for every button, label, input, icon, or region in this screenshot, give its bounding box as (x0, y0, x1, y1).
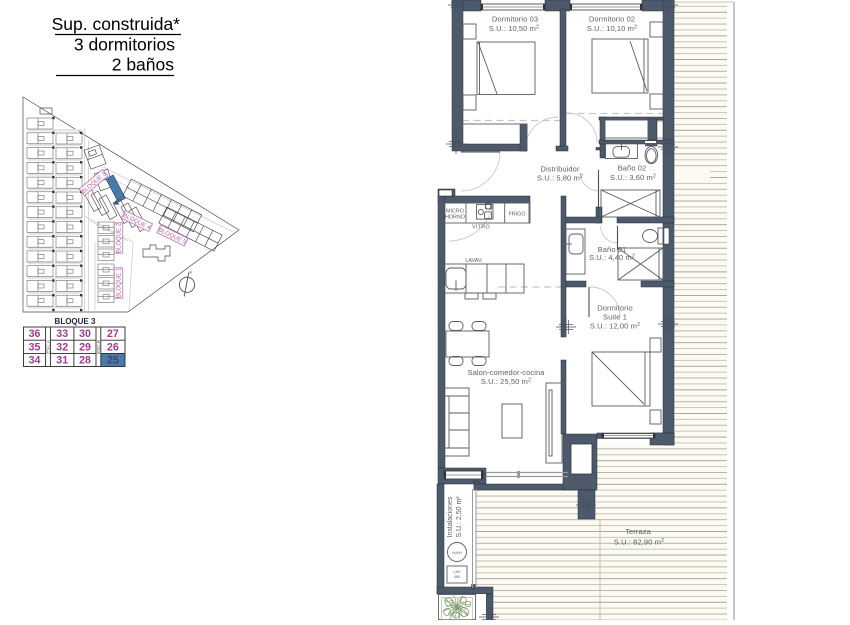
svg-text:Distribuidor: Distribuidor (540, 165, 580, 174)
svg-text:2 baños: 2 baños (112, 55, 175, 75)
svg-text:30: 30 (79, 328, 91, 340)
svg-text:28: 28 (79, 355, 91, 367)
svg-text:S.U.: 12,00 m2: S.U.: 12,00 m2 (590, 322, 640, 331)
svg-text:31: 31 (56, 355, 68, 367)
svg-text:LAV: LAV (454, 570, 461, 574)
svg-text:HORNO: HORNO (445, 214, 465, 220)
svg-text:460: 460 (454, 575, 460, 579)
svg-text:Dormitorio 03: Dormitorio 03 (492, 15, 538, 24)
svg-text:S.U.: 10,50 m2: S.U.: 10,50 m2 (489, 24, 539, 33)
svg-text:32: 32 (56, 341, 68, 353)
svg-text:Instalaciones: Instalaciones (447, 496, 454, 537)
svg-text:Suite 1: Suite 1 (603, 313, 627, 322)
svg-text:Dormitorio: Dormitorio (597, 304, 633, 313)
svg-text:VITRO: VITRO (472, 225, 490, 231)
svg-text:S.U.: 2,50 m²: S.U.: 2,50 m² (456, 496, 463, 538)
svg-text:S.U.: 25,50 m2: S.U.: 25,50 m2 (481, 377, 531, 386)
svg-text:Salon-comedor-cocina: Salon-comedor-cocina (467, 368, 545, 377)
svg-text:27: 27 (107, 328, 119, 340)
svg-text:34: 34 (29, 355, 41, 367)
svg-text:BLOQUE 3: BLOQUE 3 (55, 317, 96, 326)
svg-text:S.U.: 3,60 m2: S.U.: 3,60 m2 (610, 173, 656, 182)
svg-text:LAVAV.: LAVAV. (465, 258, 482, 264)
svg-text:S.U.: 82,90 m2: S.U.: 82,90 m2 (614, 537, 664, 546)
svg-text:Baño 02: Baño 02 (618, 164, 647, 173)
svg-text:29: 29 (79, 341, 91, 353)
svg-text:Terraza: Terraza (625, 527, 651, 536)
svg-text:BLOQUE 1: BLOQUE 1 (117, 267, 123, 298)
svg-text:3 dormitorios: 3 dormitorios (74, 35, 175, 55)
svg-text:33: 33 (56, 328, 68, 340)
svg-text:36: 36 (29, 328, 41, 340)
svg-text:HUKH: HUKH (452, 551, 462, 555)
svg-text:26: 26 (107, 341, 119, 353)
svg-text:Sup. construida*: Sup. construida* (52, 14, 181, 34)
svg-text:S.U.: 4,40 m2: S.U.: 4,40 m2 (589, 253, 635, 262)
svg-text:S.U.: 5,80 m2: S.U.: 5,80 m2 (537, 174, 583, 183)
svg-text:25: 25 (107, 355, 119, 367)
svg-text:35: 35 (29, 341, 41, 353)
svg-text:ESC.B: ESC.B (96, 340, 101, 354)
svg-text:Dormitorio 02: Dormitorio 02 (589, 15, 635, 24)
svg-text:S.U.: 10,10 m2: S.U.: 10,10 m2 (587, 24, 637, 33)
svg-text:BLOQUE 2: BLOQUE 2 (117, 222, 123, 253)
svg-text:FRIGO: FRIGO (508, 212, 525, 218)
svg-text:ESC.A: ESC.A (46, 339, 51, 354)
